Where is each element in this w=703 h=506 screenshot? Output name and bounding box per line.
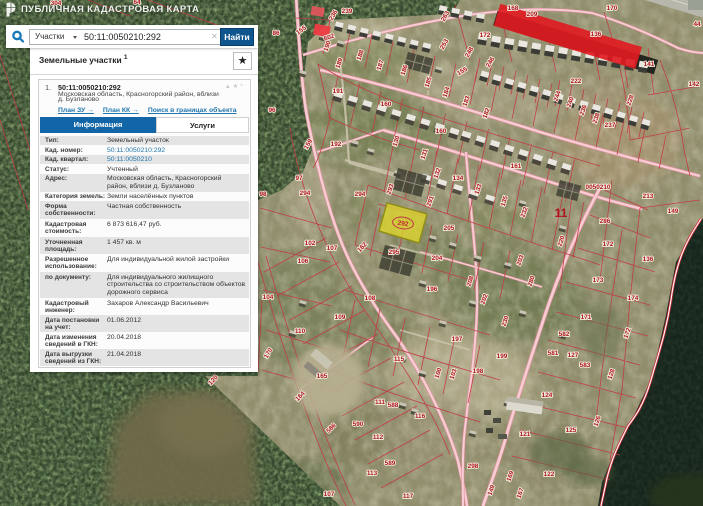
svg-text:583: 583 (580, 362, 591, 369)
svg-text:113: 113 (367, 470, 378, 477)
svg-text:125: 125 (566, 427, 577, 434)
svg-text:160: 160 (381, 101, 392, 108)
svg-text:112: 112 (373, 434, 384, 441)
svg-text:161: 161 (511, 163, 522, 170)
svg-text:171: 171 (581, 314, 592, 321)
svg-text:98: 98 (259, 191, 267, 198)
svg-text:588: 588 (388, 402, 399, 409)
svg-text:121: 121 (520, 431, 531, 438)
svg-text:0050210: 0050210 (586, 184, 611, 191)
svg-text:172: 172 (603, 241, 614, 248)
svg-text:582: 582 (559, 331, 570, 338)
svg-text:108: 108 (365, 295, 376, 302)
svg-text:295: 295 (389, 249, 400, 256)
svg-text:198: 198 (473, 368, 484, 375)
svg-text:294: 294 (355, 191, 366, 198)
svg-text:141: 141 (644, 61, 655, 68)
svg-text:589: 589 (385, 460, 396, 467)
svg-text:160: 160 (436, 128, 447, 135)
svg-text:115: 115 (394, 356, 405, 363)
svg-text:116: 116 (415, 413, 426, 420)
svg-text:104: 104 (263, 294, 274, 301)
svg-text:168: 168 (508, 5, 519, 12)
svg-text:134: 134 (453, 175, 464, 182)
svg-text:174: 174 (628, 295, 639, 302)
svg-text:111: 111 (375, 399, 385, 406)
svg-text:298: 298 (468, 463, 479, 470)
svg-text:11: 11 (555, 206, 568, 220)
svg-text:106: 106 (298, 258, 309, 265)
svg-text:127: 127 (568, 352, 579, 359)
svg-text:237: 237 (605, 122, 616, 129)
svg-text:136: 136 (591, 31, 602, 38)
svg-text:136: 136 (643, 256, 654, 263)
svg-text:142: 142 (689, 81, 700, 88)
svg-text:97: 97 (295, 175, 303, 182)
svg-text:222: 222 (571, 78, 582, 85)
svg-text:107: 107 (327, 245, 338, 252)
svg-text:122: 122 (544, 471, 555, 478)
svg-text:204: 204 (432, 255, 443, 262)
svg-text:294: 294 (300, 190, 311, 197)
svg-text:117: 117 (403, 493, 414, 500)
svg-text:197: 197 (452, 336, 463, 343)
svg-text:124: 124 (542, 392, 553, 399)
svg-text:191: 191 (333, 88, 344, 95)
svg-text:209: 209 (527, 11, 538, 18)
svg-text:44: 44 (693, 21, 701, 28)
svg-text:590: 590 (353, 421, 364, 428)
svg-text:107: 107 (324, 491, 335, 498)
svg-text:172: 172 (480, 32, 491, 39)
svg-text:239: 239 (342, 8, 353, 15)
svg-text:86: 86 (272, 30, 280, 37)
svg-text:581: 581 (548, 350, 559, 357)
svg-text:196: 196 (427, 286, 438, 293)
svg-text:96: 96 (268, 107, 276, 114)
svg-text:199: 199 (497, 353, 508, 360)
svg-text:109: 109 (335, 314, 346, 321)
svg-text:286: 286 (600, 218, 611, 225)
svg-text:110: 110 (295, 328, 306, 335)
svg-text:213: 213 (643, 193, 654, 200)
svg-text:149: 149 (668, 208, 679, 215)
svg-text:165: 165 (317, 373, 328, 380)
svg-text:192: 192 (331, 141, 342, 148)
svg-text:205: 205 (444, 225, 455, 232)
svg-text:173: 173 (593, 277, 604, 284)
svg-text:170: 170 (607, 5, 618, 12)
svg-text:102: 102 (305, 240, 316, 247)
